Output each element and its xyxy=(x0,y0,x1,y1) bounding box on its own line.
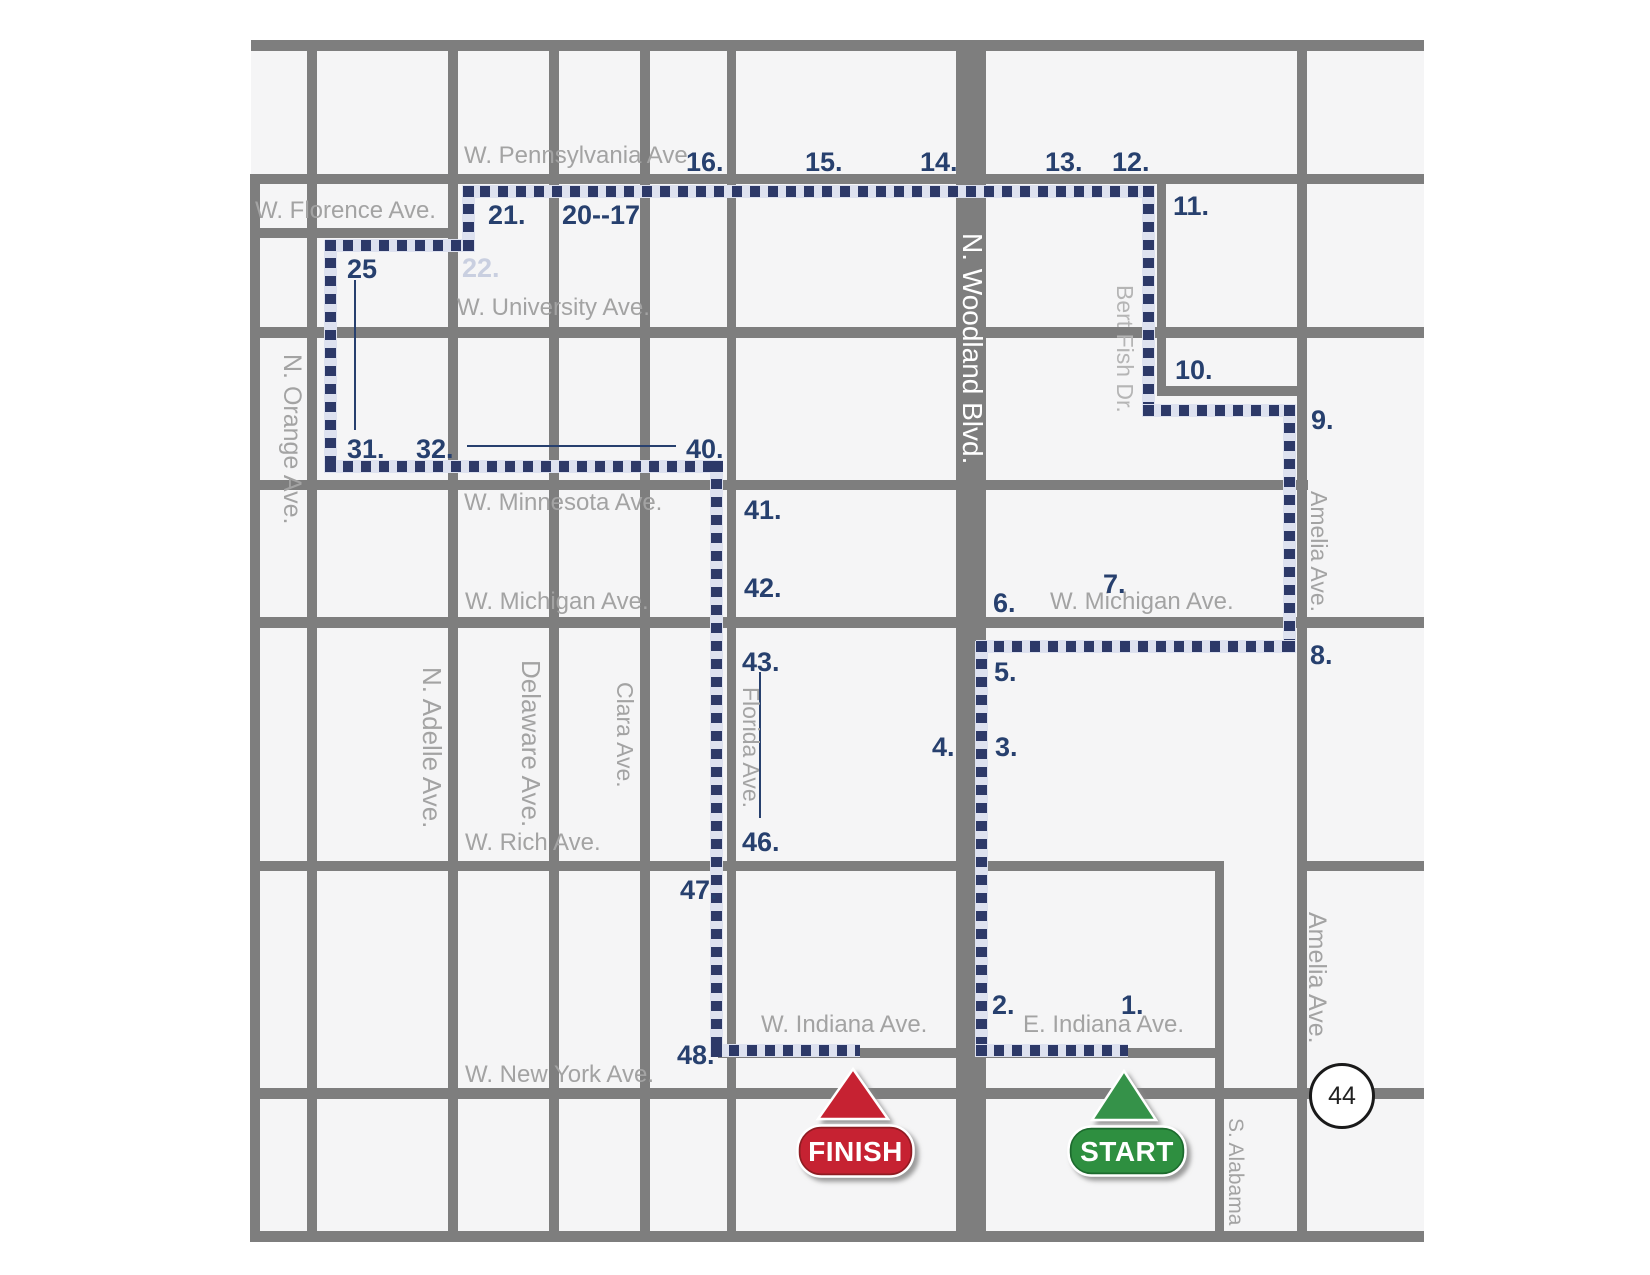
svg-text:START: START xyxy=(1080,1136,1174,1167)
svg-text:FINISH: FINISH xyxy=(808,1136,903,1167)
